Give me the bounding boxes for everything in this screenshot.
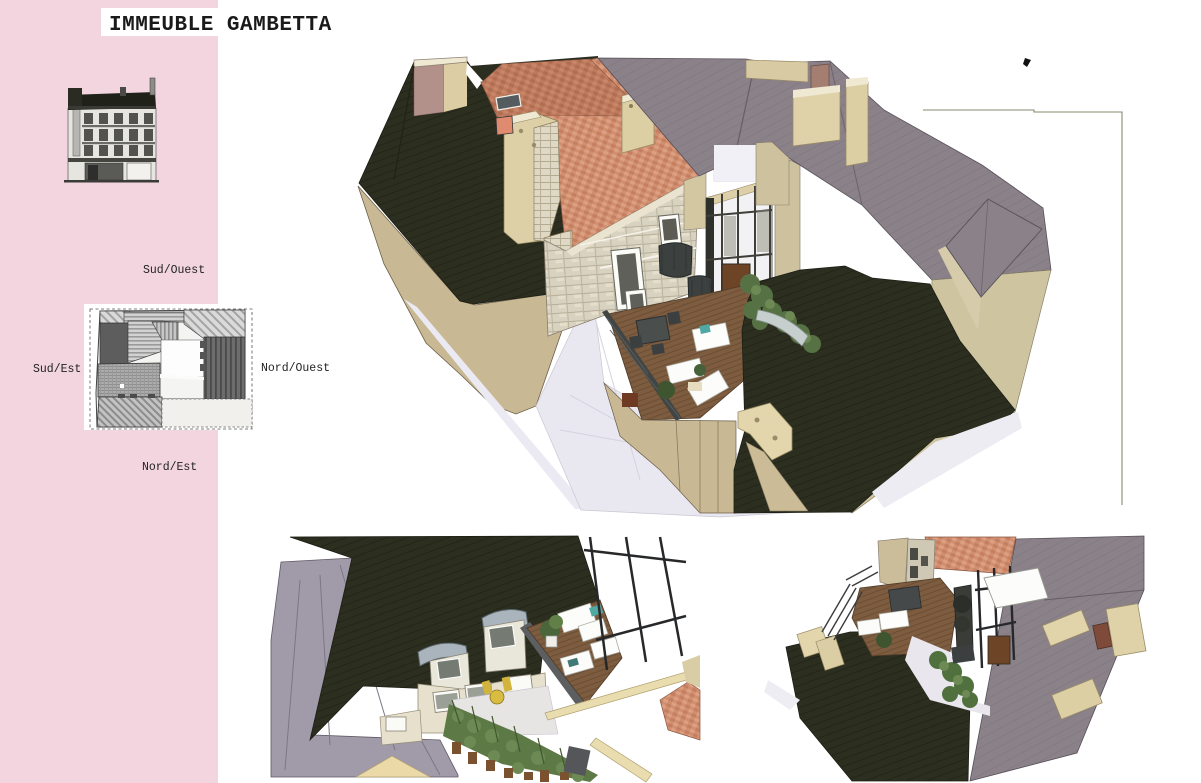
- svg-text:IMMEUBLE GAMBETTA: IMMEUBLE GAMBETTA: [109, 14, 332, 37]
- svg-text:Nord/Ouest: Nord/Ouest: [261, 362, 330, 375]
- svg-text:Sud/Ouest: Sud/Ouest: [143, 264, 205, 277]
- svg-text:Nord/Est: Nord/Est: [142, 461, 197, 474]
- svg-text:Sud/Est: Sud/Est: [33, 363, 81, 376]
